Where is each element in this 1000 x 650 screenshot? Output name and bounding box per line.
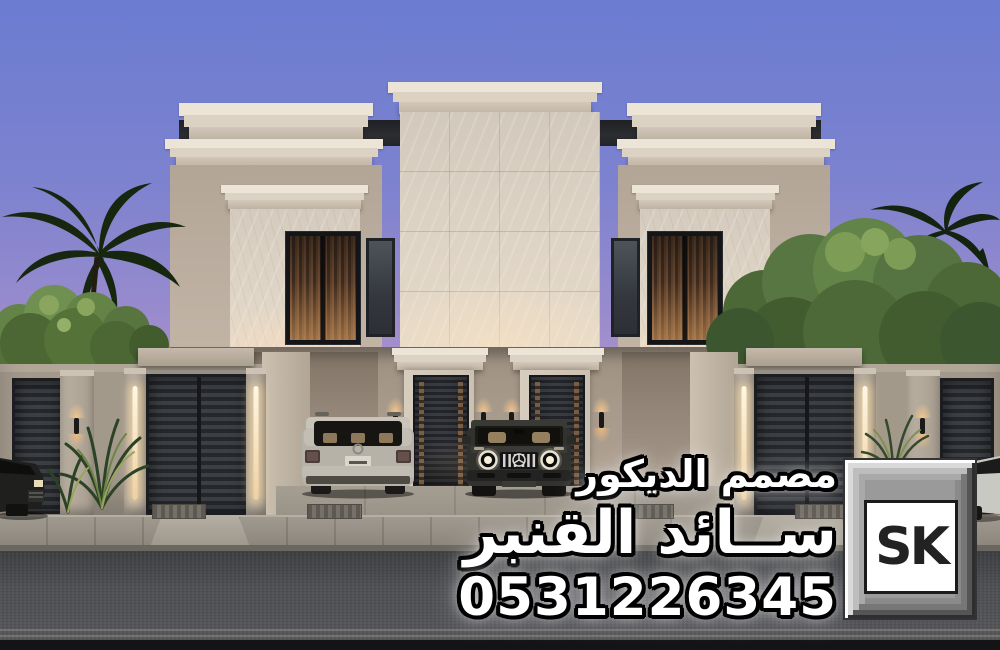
left-gate-canopy (138, 348, 254, 366)
left-wing-front-cornice (165, 139, 383, 167)
left-led-pillar-2 (246, 368, 266, 516)
parked-truck-front-left (0, 450, 48, 522)
sk-logo-badge: SK (845, 460, 975, 618)
left-narrow-window (366, 238, 395, 337)
right-gate-canopy (746, 348, 862, 366)
led-strip-light (254, 386, 259, 500)
left-door-pediment (392, 348, 488, 370)
trees-and-palm-right (695, 182, 1000, 374)
fence-plant-left (44, 386, 156, 516)
left-window-pediment (221, 185, 368, 209)
right-wing-front-cornice (617, 139, 835, 167)
palm-tree-and-bush-left (0, 175, 194, 375)
advert-text-block: مصمم الديكور ســائد القنبر 0531226345 (458, 451, 837, 627)
phone-number: 0531226345 (458, 569, 837, 627)
foreground-dark-edge (0, 640, 1000, 650)
curb-ramp-left (150, 515, 250, 547)
drain-grate (307, 504, 362, 519)
designer-name: ســائد القنبر (464, 499, 837, 567)
tower-marble-facade (400, 112, 600, 352)
left-main-window (286, 232, 360, 344)
left-wing-upper-cornice (179, 103, 373, 140)
profession-title: مصمم الديكور (576, 451, 837, 497)
right-door-pediment (508, 348, 604, 370)
silver-suv-rear (299, 404, 417, 500)
drain-grate (152, 504, 206, 519)
left-main-gate (146, 374, 252, 516)
tower-cornice (388, 82, 602, 114)
road-seam-line (0, 629, 1000, 631)
road-seam-line (0, 635, 1000, 637)
right-wing-upper-cornice (627, 103, 821, 140)
right-narrow-window (611, 238, 640, 337)
sk-logo-monogram: SK (864, 500, 958, 594)
villa-render-poster: مصمم الديكور ســائد القنبر 0531226345 SK (0, 0, 1000, 650)
